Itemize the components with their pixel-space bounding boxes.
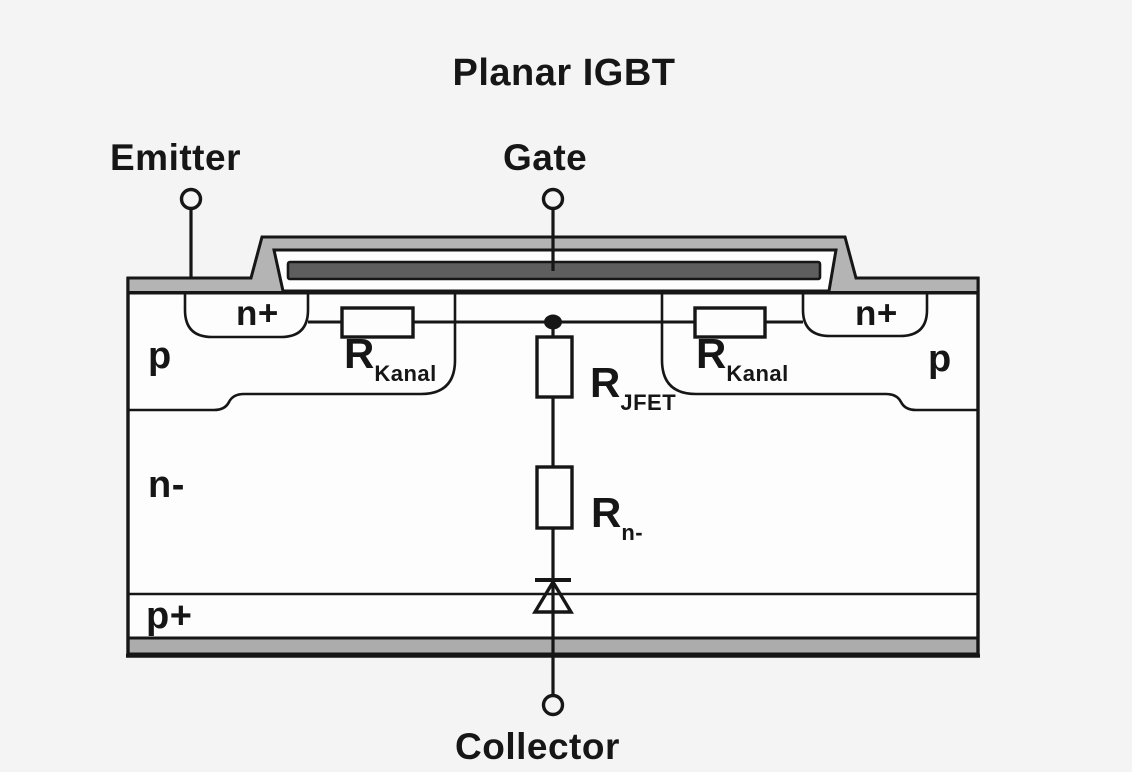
region-label-n-drift: n- [148,466,185,504]
region-label-p-plus: p+ [146,597,192,635]
collector-label: Collector [455,728,620,765]
label-r-kanal-left: RKanal [344,333,437,375]
label-r-jfet: RJFET [590,362,676,404]
region-label-p-left: p [148,337,172,375]
collector-terminal [544,696,563,715]
label-r-drift: Rn- [591,492,643,534]
region-label-n-plus-left: n+ [236,296,279,331]
region-label-p-right: p [928,340,952,378]
r-jfet-base: R [590,359,620,406]
junction-dot [544,315,562,330]
planar-igbt-diagram: Planar IGBT Emitter Gate Collector n+ n+… [0,0,1132,772]
igbt-cross-section-drawing [0,0,1132,772]
emitter-label: Emitter [110,139,241,176]
page-title: Planar IGBT [394,54,734,92]
label-r-kanal-right: RKanal [696,333,789,375]
emitter-terminal [182,190,201,209]
r-drift-sub: n- [621,520,643,545]
r-kanal-left-base: R [344,330,374,377]
r-kanal-right-sub: Kanal [726,361,788,386]
r-kanal-left-sub: Kanal [374,361,436,386]
r-jfet-sub: JFET [620,390,676,415]
jfet-resistor [537,337,572,397]
gate-terminal [544,190,563,209]
r-kanal-right-base: R [696,330,726,377]
r-drift-base: R [591,489,621,536]
gate-label: Gate [503,139,587,176]
region-label-n-plus-right: n+ [855,296,898,331]
drift-resistor [537,467,572,528]
